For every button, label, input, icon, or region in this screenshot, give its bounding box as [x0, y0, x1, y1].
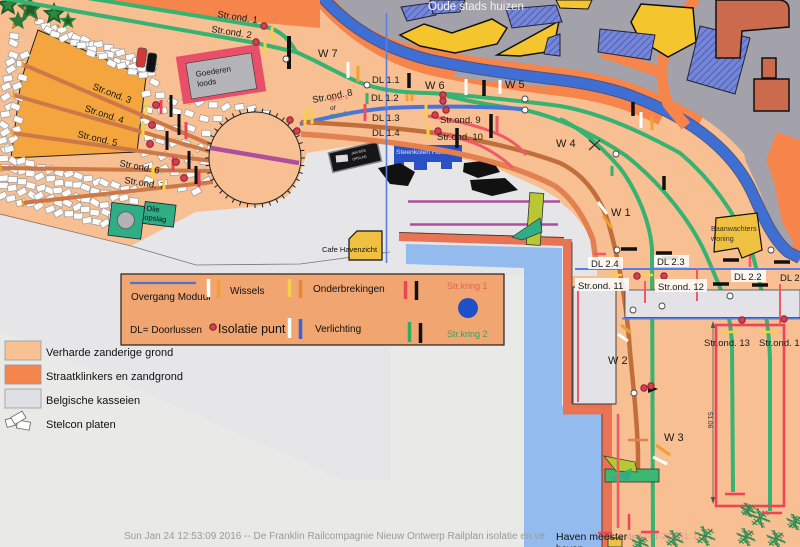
svg-text:Str.kring 2: Str.kring 2 — [447, 329, 488, 339]
svg-text:W 4: W 4 — [556, 138, 576, 150]
svg-text:DL= Doorlussen: DL= Doorlussen — [130, 325, 202, 336]
svg-text:DL 2.2: DL 2.2 — [734, 272, 762, 283]
svg-text:Str.ond. 9: Str.ond. 9 — [440, 115, 481, 126]
svg-text:Str.ond. 13: Str.ond. 13 — [704, 338, 750, 349]
svg-text:Verharde zanderige grond: Verharde zanderige grond — [46, 347, 173, 359]
svg-text:W 6: W 6 — [425, 80, 445, 92]
svg-text:Stelcon platen: Stelcon platen — [46, 419, 116, 431]
svg-text:Overgang Moduul: Overgang Moduul — [131, 292, 211, 303]
svg-text:W 5: W 5 — [505, 79, 525, 91]
svg-text:DL 2.3: DL 2.3 — [657, 257, 685, 268]
svg-text:Str.kring 1: Str.kring 1 — [447, 281, 488, 291]
svg-text:Cafe Havenzicht: Cafe Havenzicht — [322, 245, 378, 254]
svg-text:DL 1.4: DL 1.4 — [372, 128, 400, 139]
svg-text:DL 2: DL 2 — [780, 273, 800, 284]
svg-text:Wissels: Wissels — [230, 286, 264, 297]
svg-text:woning: woning — [710, 234, 734, 243]
svg-text:Str.ond. 12: Str.ond. 12 — [658, 282, 704, 293]
svg-text:Straatklinkers en zandgrond: Straatklinkers en zandgrond — [46, 371, 183, 383]
svg-text:W 7: W 7 — [318, 48, 338, 60]
svg-text:51.06: 51.06 — [706, 412, 713, 429]
svg-text:DL 1.1: DL 1.1 — [372, 75, 400, 86]
svg-text:DL 1.2: DL 1.2 — [371, 93, 399, 104]
svg-text:Haven meester: Haven meester — [556, 531, 628, 543]
svg-text:Str.ond. 10: Str.ond. 10 — [437, 132, 483, 143]
svg-text:Isolatie punt: Isolatie punt — [218, 322, 286, 336]
svg-text:Verlichting: Verlichting — [315, 324, 361, 335]
svg-text:W 2: W 2 — [608, 355, 628, 367]
svg-text:Belgische kasseien: Belgische kasseien — [46, 395, 140, 407]
svg-text:DL 1.3: DL 1.3 — [372, 113, 400, 124]
svg-text:Str.ond. 1: Str.ond. 1 — [759, 338, 800, 349]
svg-text:of: of — [330, 105, 336, 112]
svg-text:Baanwachters: Baanwachters — [711, 224, 757, 233]
svg-text:W 3: W 3 — [664, 432, 684, 444]
svg-text:Onderbrekingen: Onderbrekingen — [313, 284, 385, 295]
svg-text:W 1: W 1 — [611, 207, 631, 219]
svg-text:Sun Jan 24 12:53:09 2016 -- De: Sun Jan 24 12:53:09 2016 -- De Franklin … — [124, 531, 545, 542]
svg-text:de 12-01-2015 (1: 1): de 12-01-2015 (1: 1) — [627, 532, 700, 541]
svg-text:Oude stads huizen: Oude stads huizen — [428, 1, 524, 13]
svg-text:Str.ond. 11: Str.ond. 11 — [578, 281, 623, 292]
svg-text:DL 2.4: DL 2.4 — [591, 259, 619, 270]
